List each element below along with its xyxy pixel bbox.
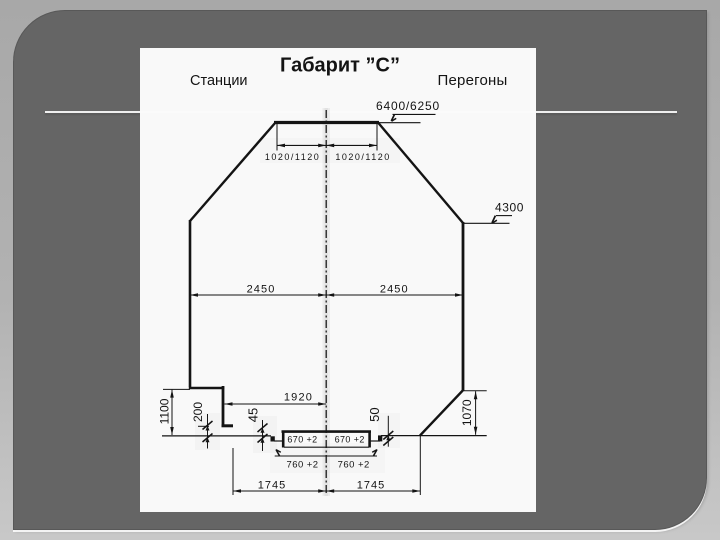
svg-text:Габарит ”С”: Габарит ”С” xyxy=(280,55,400,77)
svg-text:45: 45 xyxy=(245,408,260,422)
svg-text:760 +2: 760 +2 xyxy=(286,459,318,470)
svg-text:50: 50 xyxy=(367,407,382,421)
svg-text:1070: 1070 xyxy=(460,399,474,426)
svg-text:Станции: Станции xyxy=(190,73,248,89)
svg-text:1020/1120: 1020/1120 xyxy=(265,152,320,162)
svg-text:2450: 2450 xyxy=(380,284,409,296)
svg-text:1920: 1920 xyxy=(284,391,313,403)
svg-text:Перегоны: Перегоны xyxy=(438,72,508,89)
svg-text:1745: 1745 xyxy=(357,480,385,492)
svg-text:760 +2: 760 +2 xyxy=(338,459,370,470)
svg-text:670 +2: 670 +2 xyxy=(287,435,317,445)
svg-text:6400/6250: 6400/6250 xyxy=(376,99,440,113)
svg-text:670 +2: 670 +2 xyxy=(335,435,365,445)
svg-text:200: 200 xyxy=(191,402,205,422)
svg-text:4300: 4300 xyxy=(495,201,524,215)
svg-text:1745: 1745 xyxy=(258,480,286,492)
svg-text:2450: 2450 xyxy=(247,284,276,296)
svg-text:1100: 1100 xyxy=(158,398,172,424)
svg-text:1020/1120: 1020/1120 xyxy=(335,152,390,162)
